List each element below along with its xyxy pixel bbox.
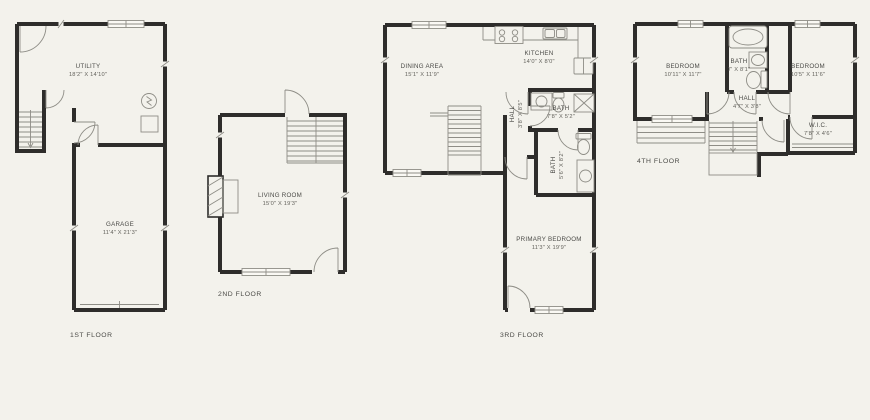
room-dims: 15'1" X 11'9" [401,71,444,79]
room-name: HALL [509,100,517,128]
room-label-hall-4th: HALL 4'7" X 3'8" [733,95,761,111]
room-dims: 4'7" X 3'8" [733,103,761,111]
stove-icon [495,27,523,44]
room-name: DINING AREA [401,63,444,71]
garage-door [80,301,159,308]
room-label-bath-3rd: BATH 7'8" X 5'2" [547,105,575,121]
room-label-bath-4th: BATH 7' X 8'1" [728,58,750,74]
room-label-primary-bedroom: PRIMARY BEDROOM 11'3" X 19'9" [516,236,581,252]
room-dims: 10'11" X 11'7" [664,71,701,79]
floorplan-sheet: UTILITY 18'2" X 14'10" GARAGE 11'4" X 21… [0,0,870,420]
floor-plan-2nd [208,90,349,276]
refrigerator-icon [574,58,593,74]
stairs [709,121,757,175]
room-dims: 7'8" X 5'2" [547,113,575,121]
room-name: UTILITY [69,63,107,71]
stairs [430,106,481,175]
room-dims: 18'2" X 14'10" [69,71,107,79]
door-arc [508,286,530,314]
floor-label-2nd: 2ND FLOOR [218,291,262,298]
wall-break-marks [216,132,349,198]
room-dims: 15'0" X 19'3" [258,200,302,208]
room-label-bath2-3rd: BATH 5'6" X 8'2" [550,151,566,179]
window [242,269,290,276]
shower-icon [574,94,594,112]
bathtub-icon [729,26,767,48]
room-dims: 7'8" X 4'6" [804,130,832,138]
vanity-sink-icon [749,52,767,68]
kitchen-sink-icon [543,28,567,39]
room-name: BATH [550,151,558,179]
room-name: LIVING ROOM [258,192,302,200]
room-dims: 3'8" X 8'5" [517,100,525,128]
room-name: PRIMARY BEDROOM [516,236,581,244]
room-dims: 14'0" X 8'0" [523,58,554,66]
room-name: GARAGE [103,221,137,229]
roof-deck-lines [637,121,705,143]
room-name: BATH [547,105,575,113]
window [108,21,144,28]
floor-label-3rd: 3RD FLOOR [500,332,544,339]
door-arc [312,248,338,276]
room-name: BATH [728,58,750,66]
room-label-garage: GARAGE 11'4" X 21'3" [103,221,137,237]
room-label-bedroom-left: BEDROOM 10'11" X 11'7" [664,63,701,79]
room-label-utility: UTILITY 18'2" X 14'10" [69,63,107,79]
room-name: KITCHEN [523,50,554,58]
room-label-hall-3rd: HALL 3'8" X 8'5" [509,100,525,128]
room-dims: 11'3" X 19'9" [516,244,581,252]
room-label-kitchen: KITCHEN 14'0" X 8'0" [523,50,554,66]
floor-label-4th: 4TH FLOOR [637,158,680,165]
closet-rod [792,144,853,148]
stairs [287,117,343,163]
stairs [19,110,42,148]
room-dims: 11'4" X 21'3" [103,229,137,237]
room-name: BEDROOM [664,63,701,71]
room-dims: 5'6" X 8'2" [558,151,566,179]
vanity-sink-icon [577,160,594,192]
room-name: HALL [733,95,761,103]
room-name: BEDROOM [791,63,825,71]
room-label-living-room: LIVING ROOM 15'0" X 19'3" [258,192,302,208]
electrical-panel-icon [141,94,158,133]
fireplace [208,176,238,217]
room-name: W.I.C. [804,122,832,130]
door-arc [285,90,309,114]
room-label-dining-area: DINING AREA 15'1" X 11'9" [401,63,444,79]
room-dims: 7' X 8'1" [728,66,750,74]
floor-label-1st: 1ST FLOOR [70,332,113,339]
room-label-bedroom-right: BEDROOM 10'5" X 11'6" [791,63,825,79]
room-label-wic: W.I.C. 7'8" X 4'6" [804,122,832,138]
room-dims: 10'5" X 11'6" [791,71,825,79]
